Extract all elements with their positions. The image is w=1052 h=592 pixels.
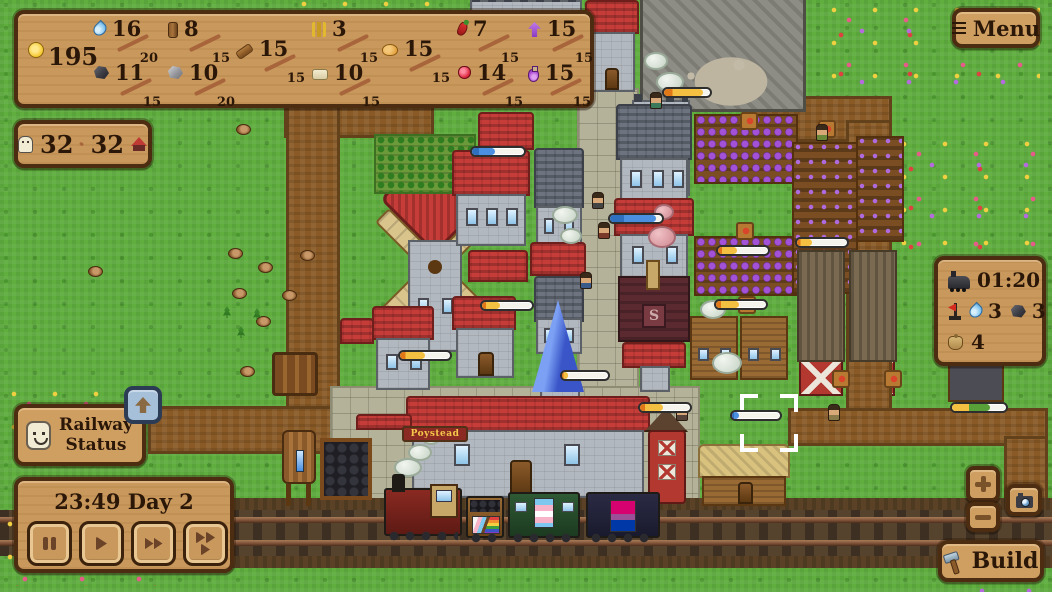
plus-icon: [975, 476, 991, 492]
resource-plank: 1515: [236, 42, 305, 82]
game-viewport: S Poystead: [0, 0, 1052, 592]
carrot-field[interactable]: [856, 136, 904, 242]
tree-stump[interactable]: [228, 248, 243, 259]
villager[interactable]: [598, 222, 610, 239]
resource-coins: 195: [28, 42, 98, 71]
market-stall-roof[interactable]: [478, 112, 534, 150]
pause-icon: [43, 537, 56, 550]
window: [698, 348, 709, 361]
water-drop-icon: [967, 302, 985, 320]
resource-berry: 1415: [458, 66, 523, 106]
play-icon: [96, 537, 107, 550]
window: [544, 218, 554, 234]
flowers: [900, 140, 1040, 260]
progress-bar: [714, 299, 768, 310]
resource-bread: 1515: [382, 42, 450, 82]
up-arrow-icon: [135, 397, 151, 413]
window: [386, 354, 398, 370]
car-wheels: [590, 533, 656, 543]
door: [738, 482, 753, 504]
window: [466, 208, 478, 226]
house-roof[interactable]: [468, 250, 528, 282]
train-cargo-row: 4: [948, 330, 1032, 354]
smoke-puff: [648, 226, 676, 248]
window: [748, 348, 759, 361]
bread-icon: [382, 44, 398, 56]
villager[interactable]: [828, 404, 840, 421]
well-roof[interactable]: [622, 342, 686, 368]
cloth-icon: [312, 69, 328, 80]
slash-divider: [79, 142, 84, 147]
progress-bar: [950, 402, 1008, 413]
coin-count: 195: [48, 42, 98, 71]
smoke-puff: [712, 352, 742, 374]
tree-stump[interactable]: [256, 316, 271, 327]
cab-window: [436, 490, 452, 502]
field-sign[interactable]: [736, 222, 754, 240]
log-icon: [168, 22, 178, 38]
log-pile[interactable]: [272, 352, 318, 396]
well[interactable]: [640, 366, 670, 392]
tree-stump[interactable]: [282, 290, 297, 301]
window: [630, 170, 642, 188]
collapse-panel-button[interactable]: [124, 386, 162, 424]
train-cargo-count: 4: [971, 330, 985, 354]
water-drop-icon: [91, 20, 109, 38]
purple-carrot-icon: [528, 22, 541, 37]
build-button[interactable]: Build: [938, 540, 1044, 582]
door: [605, 68, 619, 90]
window: [454, 444, 470, 466]
house-wall[interactable]: [456, 194, 526, 246]
resource-water: 1620: [94, 22, 158, 62]
pause-button[interactable]: [27, 521, 72, 566]
progress-pride-flag: [472, 516, 500, 534]
car-window: [515, 502, 527, 512]
population-panel: 32 32: [14, 120, 152, 168]
count: 16: [112, 16, 141, 41]
station-name: Poystead: [411, 429, 460, 439]
barn-sign[interactable]: [832, 370, 850, 388]
brewery-emblem: S: [642, 304, 666, 328]
resource-potion: 1515: [528, 66, 591, 106]
fast-forward-button[interactable]: [131, 521, 176, 566]
townhouse-roof[interactable]: [530, 242, 586, 276]
resource-coal: 1115: [94, 66, 161, 106]
thatch-house-wall[interactable]: [702, 476, 786, 506]
progress-bar: [560, 370, 610, 381]
door: [478, 352, 494, 376]
townhouse-roof[interactable]: [534, 148, 584, 208]
house-wall[interactable]: [376, 338, 430, 390]
tree-stump[interactable]: [88, 266, 103, 277]
progress-bar: [716, 245, 770, 256]
progress-bar: [480, 300, 534, 311]
bi-flag: [610, 500, 636, 532]
water-tower[interactable]: [282, 430, 316, 484]
coal-bin[interactable]: [320, 438, 372, 500]
water-gauge: [296, 450, 304, 472]
resource-pepper: 715: [458, 22, 519, 62]
freight-car[interactable]: [586, 492, 660, 538]
play-button[interactable]: [79, 521, 124, 566]
tree-stump[interactable]: [300, 250, 315, 261]
pepper-icon: [456, 21, 470, 37]
water-tower-leg: [286, 484, 291, 506]
happy-face-icon: [26, 421, 51, 450]
station-sign[interactable]: Poystead: [402, 426, 468, 442]
resource-wheat: 315: [312, 22, 378, 62]
train-coal-count: 3: [1032, 299, 1046, 323]
tree-stump[interactable]: [258, 262, 273, 273]
house-icon: [131, 137, 148, 152]
wooden-house[interactable]: [740, 316, 788, 380]
resource-purple-carrot: 1515: [528, 22, 593, 62]
hamburger-icon: [952, 22, 966, 34]
hammer-icon: [941, 547, 969, 575]
tender-wheels: [470, 533, 500, 543]
smoke-puff: [644, 52, 668, 70]
coal-icon: [1011, 305, 1026, 318]
game-clock: 23:49 Day 2: [18, 489, 230, 514]
progress-bar: [795, 237, 849, 248]
car-window: [562, 502, 574, 512]
camera-icon: [1016, 496, 1033, 508]
minus-icon: [975, 515, 991, 520]
coal-icon: [94, 66, 109, 79]
locomotive-cab: [430, 484, 458, 518]
trans-flag-poster: [534, 498, 554, 528]
progress-bar: [730, 410, 782, 421]
population-current: 32: [40, 130, 73, 159]
windmill-hub: [428, 260, 442, 274]
tree-stump[interactable]: [236, 124, 251, 135]
resource-stone: 1020: [168, 66, 235, 106]
field-sign[interactable]: [740, 112, 758, 130]
train-supplies-row: 3 3: [948, 299, 1032, 323]
progress-bar: [470, 146, 526, 157]
screenshot-button[interactable]: [1006, 484, 1042, 516]
resource-cloth: 1015: [312, 66, 380, 106]
silo-hatch: [658, 464, 676, 480]
brewery-chimney: [646, 260, 660, 290]
smoke-puff: [552, 206, 578, 224]
villager[interactable]: [592, 192, 604, 209]
window: [632, 246, 644, 264]
railway-status-label: Railway Status: [59, 415, 133, 455]
coal-tender[interactable]: [466, 496, 504, 538]
station-door: [510, 460, 532, 496]
house-wall[interactable]: [589, 32, 635, 92]
barn[interactable]: [797, 250, 845, 362]
window: [666, 246, 678, 264]
townhouse-roof[interactable]: [616, 104, 692, 160]
progress-bar: [662, 87, 712, 98]
wheat-icon: [312, 22, 326, 37]
locomotive-chimney: [392, 474, 405, 492]
time-panel: 23:49 Day 2: [14, 477, 234, 573]
castle-crenellation: [472, 0, 580, 2]
train-water-count: 3: [988, 299, 1002, 323]
window: [506, 208, 518, 226]
signal-icon: [948, 303, 962, 320]
next-train-time: 01:20: [977, 268, 1040, 292]
barn-sign[interactable]: [884, 370, 902, 388]
car-wheels: [512, 533, 576, 543]
progress-bar: [608, 213, 664, 224]
population-max: 32: [91, 130, 124, 159]
tree-stump[interactable]: [232, 288, 247, 299]
progress-bar: [398, 350, 452, 361]
brewery[interactable]: S: [618, 276, 690, 342]
menu-button[interactable]: Menu: [952, 8, 1040, 48]
locomotive-wheels: [388, 531, 458, 541]
window: [564, 444, 580, 466]
resource-panel: 195 1620 1115 815 1020 1515 315 1015: [14, 10, 594, 108]
smoke-puff: [560, 228, 582, 244]
villager-icon: [18, 136, 33, 153]
zoom-out-button[interactable]: [966, 502, 1000, 532]
locomotive[interactable]: [384, 488, 462, 536]
window: [672, 170, 684, 188]
silo-hatch: [658, 440, 676, 456]
villager[interactable]: [580, 272, 592, 289]
cargo-sack-icon: [948, 336, 963, 350]
stone-icon: [168, 66, 183, 79]
next-train-row: 01:20: [948, 268, 1032, 292]
menu-button-label: Menu: [973, 16, 1040, 41]
villager[interactable]: [650, 92, 662, 109]
fast-forward-icon: [145, 534, 163, 553]
potion-icon: [528, 69, 539, 82]
progress-bar: [638, 402, 692, 413]
water-tower-leg: [306, 484, 311, 506]
fastest-speed-button[interactable]: [183, 521, 228, 566]
build-button-label: Build: [972, 548, 1039, 574]
zoom-in-button[interactable]: [966, 466, 1000, 502]
coin-icon: [28, 42, 44, 58]
villager[interactable]: [816, 124, 828, 141]
window: [770, 348, 781, 361]
train-icon: [948, 276, 970, 289]
passenger-car[interactable]: [508, 492, 580, 538]
window: [486, 208, 498, 226]
house-roof[interactable]: [340, 318, 374, 344]
window: [652, 170, 664, 188]
fastest-speed-icon: [194, 532, 218, 555]
berry-icon: [458, 66, 471, 79]
townhouse-wall[interactable]: [620, 158, 688, 202]
tile-selection-brackets: [740, 394, 798, 452]
resource-log: 815: [168, 22, 230, 62]
tree-stump[interactable]: [240, 366, 255, 377]
house-wall[interactable]: [456, 328, 514, 378]
barn[interactable]: [849, 250, 897, 362]
coal-load: [470, 500, 500, 512]
plank-icon: [235, 43, 254, 60]
train-info-panel: 01:20 3 3 4: [934, 256, 1046, 366]
house-roof[interactable]: [372, 306, 434, 340]
